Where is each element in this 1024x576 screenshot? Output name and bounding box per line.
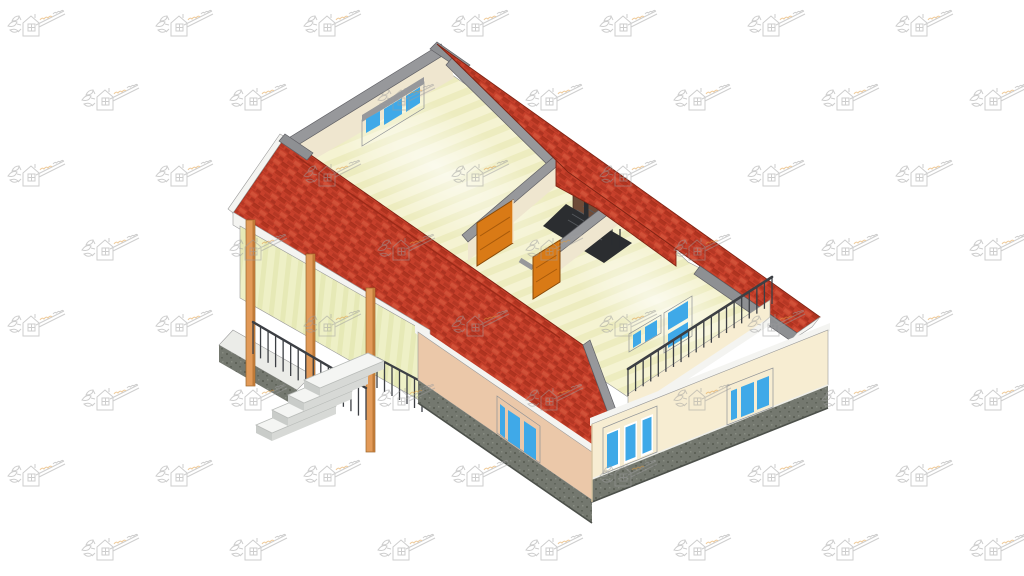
house-3d-render xyxy=(0,0,1024,576)
watermark-overlay xyxy=(0,0,1024,576)
render-viewport xyxy=(0,0,1024,576)
